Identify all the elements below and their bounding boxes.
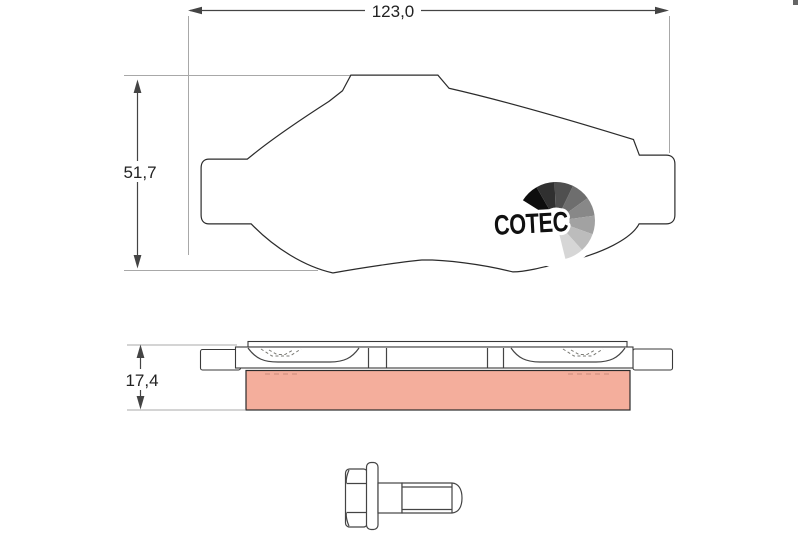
thickness-label: 17,4 — [125, 371, 158, 390]
bolt-hex-head — [346, 469, 368, 527]
technical-drawing-canvas: 123,0 51,7 — [0, 0, 800, 533]
side-plate-top-strip — [248, 342, 627, 348]
pad-front-view — [203, 77, 673, 271]
height-label: 51,7 — [123, 163, 156, 182]
bolt-threaded-end — [402, 483, 462, 513]
top-arrowhead — [137, 345, 145, 359]
flange-bolt-drawing — [346, 463, 463, 530]
width-label: 123,0 — [372, 2, 415, 21]
side-left-ear — [201, 350, 241, 371]
bolt-shank — [378, 483, 402, 513]
right-arrowhead — [655, 7, 669, 14]
top-arrowhead — [134, 80, 142, 94]
scan-artifact-dot — [793, 0, 798, 5]
bottom-arrowhead — [134, 255, 142, 269]
logo-brand-text: COTEC — [493, 206, 569, 241]
bottom-arrowhead — [137, 396, 145, 410]
side-friction-block — [246, 371, 630, 411]
bolt-flange-washer — [367, 463, 379, 530]
brake-pad-drawing: 123,0 51,7 — [0, 0, 800, 533]
side-right-ear — [633, 349, 673, 370]
side-backing-plate — [236, 347, 634, 368]
pad-side-view — [201, 342, 673, 411]
left-arrowhead — [188, 7, 202, 14]
